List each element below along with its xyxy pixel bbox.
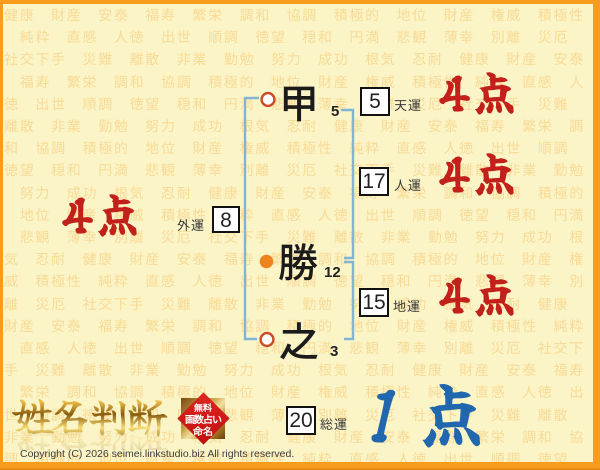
svg-text:姓名判断: 姓名判断: [12, 421, 168, 450]
